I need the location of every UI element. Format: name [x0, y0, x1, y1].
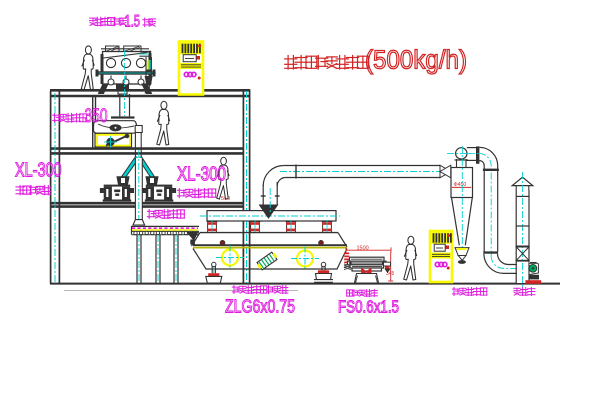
svg-text:1.5: 1.5 [125, 12, 141, 30]
svg-text:350: 350 [85, 106, 108, 127]
svg-text:FS0.6x1.5: FS0.6x1.5 [338, 297, 399, 317]
svg-text:XL-300: XL-300 [177, 164, 226, 186]
svg-text:(500kg/h): (500kg/h) [365, 47, 467, 75]
svg-text:1500: 1500 [357, 245, 369, 251]
svg-text:Φ450: Φ450 [454, 182, 467, 188]
svg-text:XL-300: XL-300 [15, 160, 62, 182]
svg-text:ZLG6x0.75: ZLG6x0.75 [225, 295, 295, 316]
